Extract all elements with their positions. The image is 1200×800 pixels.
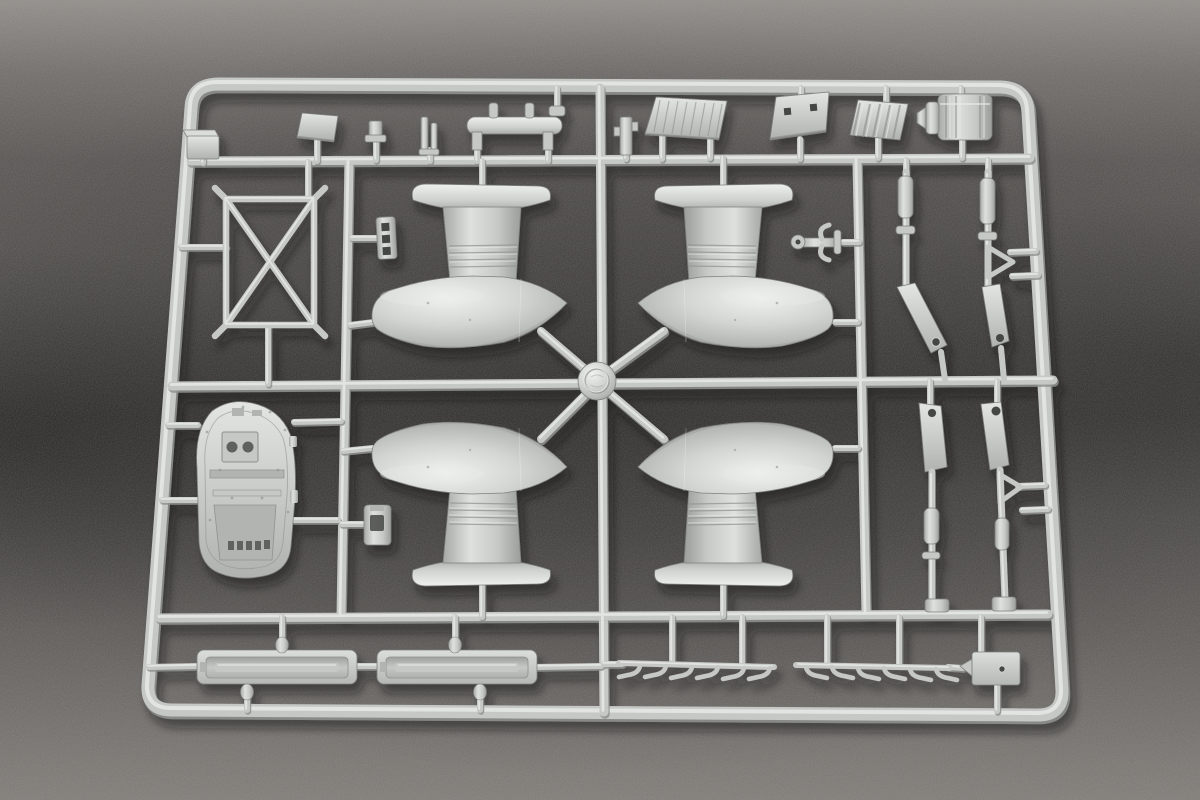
cockpit-deck-panel xyxy=(197,402,298,578)
hatch-plate xyxy=(770,92,829,139)
floor-rail-tray-left xyxy=(197,650,357,684)
sprue-photo xyxy=(0,0,1200,800)
center-medallion xyxy=(578,362,616,400)
instrument-bracket xyxy=(376,217,397,260)
radiator-panel xyxy=(645,97,727,139)
floor-rail-tray-right xyxy=(377,650,537,684)
small-box-part xyxy=(364,505,391,545)
photo-background: Photograph of a light gray injection-mol… xyxy=(0,0,1200,800)
seat-back-part xyxy=(297,113,338,141)
louver-panel xyxy=(850,100,908,140)
corner-block-part xyxy=(183,130,219,159)
